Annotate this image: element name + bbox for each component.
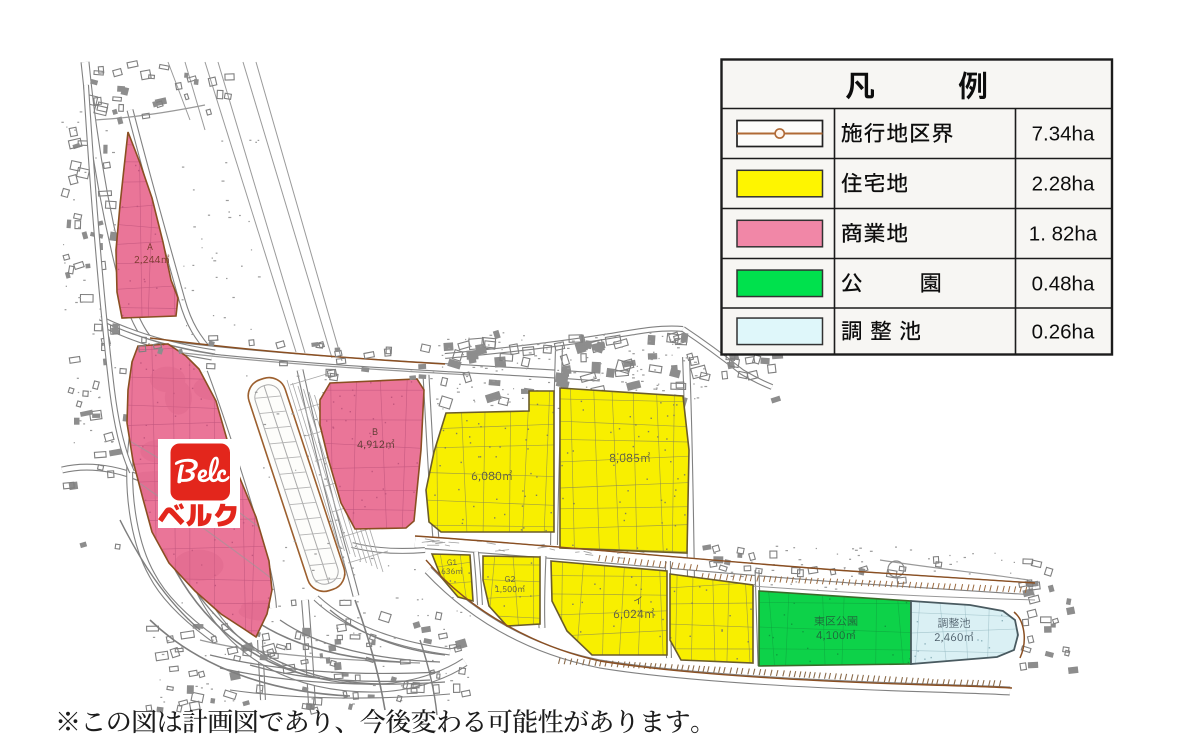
svg-text:2.28ha: 2.28ha <box>1032 173 1095 196</box>
svg-text:0.48ha: 0.48ha <box>1032 272 1095 295</box>
svg-text:0.26ha: 0.26ha <box>1032 320 1095 343</box>
svg-text:1. 82ha: 1. 82ha <box>1029 223 1098 246</box>
svg-text:7.34ha: 7.34ha <box>1032 123 1095 146</box>
